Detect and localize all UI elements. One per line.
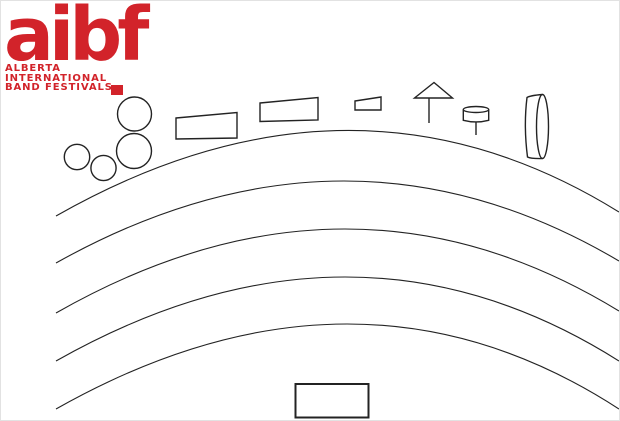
- gong-icon: [525, 95, 548, 159]
- stage-row-arc: [56, 324, 619, 409]
- drum-stand-icon: [463, 107, 488, 136]
- stage-row-arc: [56, 229, 619, 313]
- timpani-circle: [91, 155, 116, 180]
- gong-rim: [537, 95, 549, 159]
- timpani-circle: [64, 144, 89, 169]
- podium-rectangle: [296, 384, 369, 418]
- stage-row-arc: [56, 130, 619, 216]
- timpani-circle: [117, 134, 152, 169]
- percussion-table-outline: [355, 97, 381, 110]
- keyboard-percussion-outline: [260, 98, 318, 122]
- cymbal-triangle: [415, 83, 453, 99]
- drum-top: [463, 107, 488, 113]
- timpani-circle: [118, 97, 152, 131]
- cymbal-stand-icon: [415, 83, 453, 124]
- stage-setup-diagram: [1, 1, 619, 420]
- stage-row-arc: [56, 181, 619, 263]
- stage-diagram-page: aibf ALBERTA INTERNATIONAL BAND FESTIVAL…: [0, 0, 620, 421]
- timpani-section: [64, 97, 151, 181]
- gong-body: [525, 95, 542, 159]
- stage-rows: [56, 130, 619, 409]
- stage-row-arc: [56, 277, 619, 361]
- keyboard-percussion-outline: [176, 113, 237, 140]
